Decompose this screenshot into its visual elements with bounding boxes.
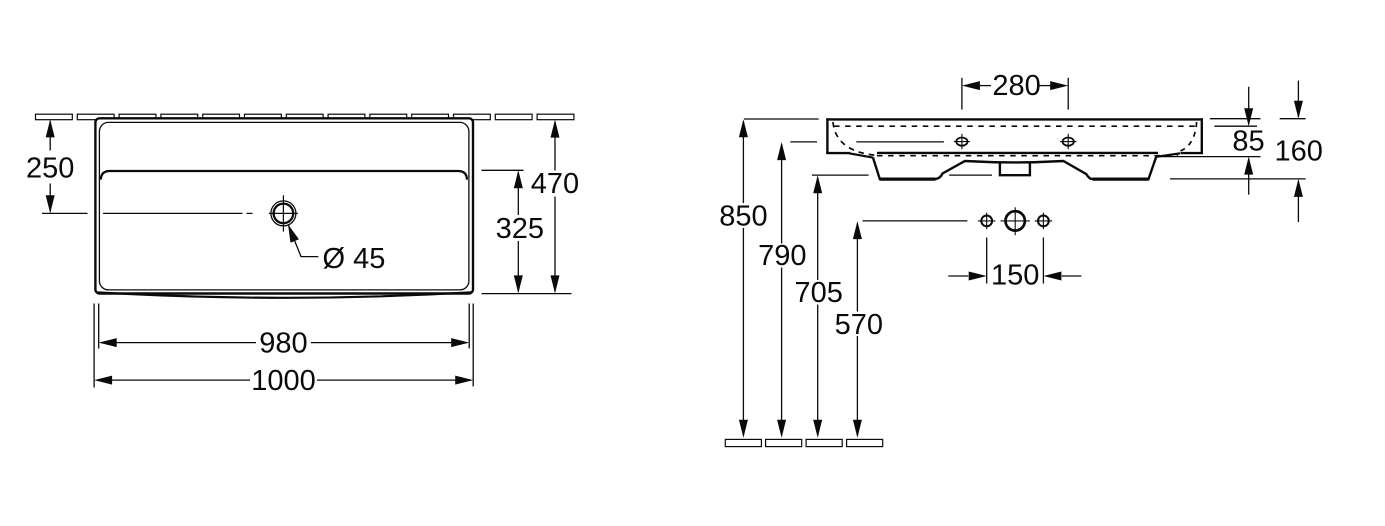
svg-text:850: 850 [719, 201, 767, 233]
svg-text:85: 85 [1232, 126, 1264, 158]
svg-text:Ø 45: Ø 45 [323, 243, 386, 275]
svg-text:705: 705 [795, 277, 843, 309]
svg-text:325: 325 [496, 213, 544, 245]
svg-text:570: 570 [835, 309, 883, 341]
svg-text:980: 980 [259, 328, 307, 360]
svg-text:1000: 1000 [251, 365, 316, 397]
svg-text:160: 160 [1275, 136, 1323, 168]
svg-text:790: 790 [758, 240, 806, 272]
svg-text:280: 280 [992, 70, 1040, 102]
svg-text:150: 150 [991, 259, 1039, 291]
svg-text:470: 470 [531, 168, 579, 200]
svg-text:250: 250 [26, 152, 74, 184]
